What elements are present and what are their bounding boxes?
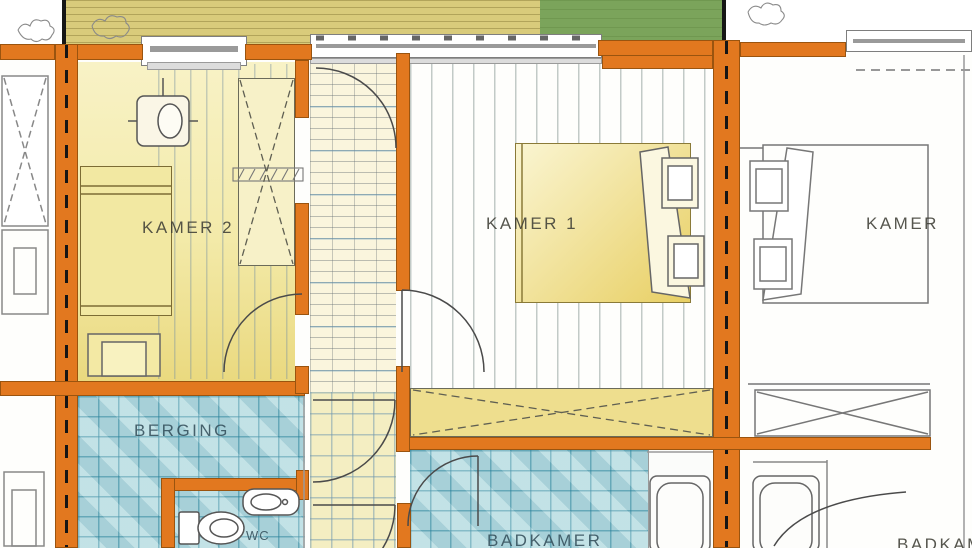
facade-wall-neighbor-right: [740, 42, 846, 57]
floor-plan: KAMER 2 KAMER 1 KAMER BERGING WC BADKAME…: [0, 0, 972, 548]
party-wall-left-axis: [65, 45, 68, 547]
neighbor-left-lines: [2, 76, 48, 546]
wall-stair-left-top: [295, 60, 309, 118]
wall-berging-top: [0, 381, 305, 396]
window-kamer2-frame: [150, 46, 238, 52]
label-kamer1: KAMER 1: [486, 214, 578, 234]
stairwell: [310, 62, 396, 392]
window-kamer1-frame: [316, 44, 596, 48]
wall-kamer1-left-low: [396, 366, 410, 452]
facade-wall-c: [598, 40, 713, 56]
facade-wall-neighbor-left: [0, 44, 55, 60]
party-wall-left: [55, 44, 78, 548]
hallway: [310, 392, 396, 548]
facade-wall-b: [245, 44, 312, 60]
label-badkamer-neighbor: BADKAMER: [897, 535, 972, 548]
wall-wc-cap: [296, 470, 309, 500]
badkamer-tub-bay: [648, 450, 713, 548]
wall-kamer1-left: [396, 53, 410, 291]
window-kamer1-sill: [310, 58, 602, 64]
property-line-right: [722, 0, 726, 44]
wall-wc-top: [161, 478, 308, 491]
label-berging: BERGING: [134, 421, 230, 441]
bed-symbol-kamer2: [80, 166, 172, 316]
party-wall-right: [713, 40, 740, 548]
bathtub-symbol-neighbor: [753, 460, 827, 548]
wardrobe-symbol-kamer1: [410, 388, 713, 437]
wardrobe-symbol-kamer2: [238, 78, 295, 266]
label-wc: WC: [246, 528, 270, 543]
wall-stair-left-low: [295, 366, 309, 394]
party-wall-right-axis: [725, 41, 728, 547]
window-neighbor-right-frame: [853, 39, 965, 43]
window-kamer2-sill: [147, 62, 241, 70]
label-kamer2: KAMER 2: [142, 218, 234, 238]
garden-neighbor-left: [0, 0, 62, 44]
room-berging: [78, 396, 305, 548]
wall-wc-left: [161, 478, 175, 548]
neighbor-right-lines: [740, 55, 972, 548]
wall-stair-left-mid: [295, 203, 309, 315]
label-kamer-neighbor: KAMER: [866, 214, 939, 234]
wall-kast-bottom: [404, 437, 931, 450]
facade-wall-c2: [602, 55, 713, 69]
wall-hall-right-low: [397, 503, 411, 548]
label-badkamer: BADKAMER: [487, 531, 602, 548]
